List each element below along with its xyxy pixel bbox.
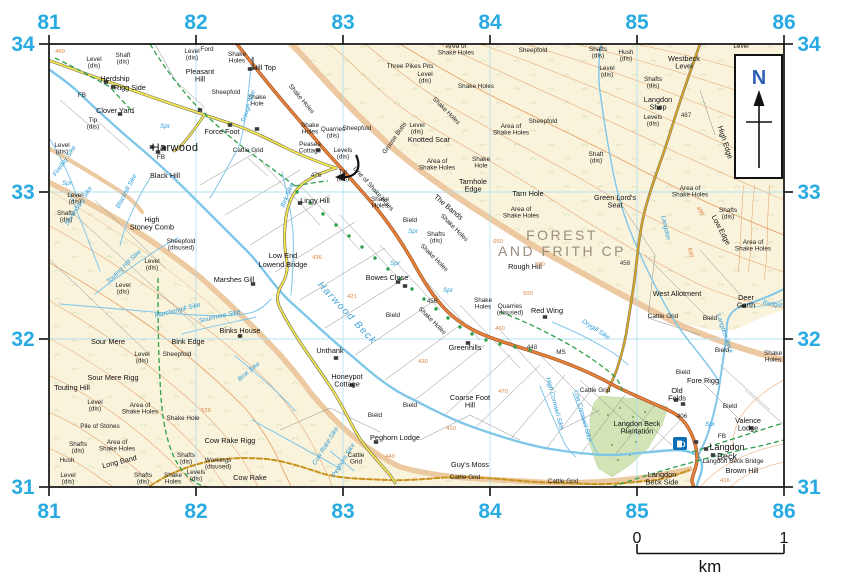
map-label: Level(dis) (134, 351, 149, 365)
map-label: Marshes Gill (214, 275, 255, 284)
map-label: FOREST (526, 227, 598, 243)
map-label: 458 (620, 260, 631, 267)
map-label: Rigg Side (114, 83, 146, 92)
tree-dot (498, 342, 501, 345)
building (704, 447, 708, 451)
map-label: 500 (523, 291, 533, 297)
map-label: Spr (443, 287, 454, 294)
map-label: Shaft(dis) (589, 151, 604, 165)
tree-dot (360, 245, 363, 248)
map-label: Sheepfold (519, 47, 548, 54)
grid-label-bottom: 85 (625, 500, 649, 523)
map-label: Hill Top (252, 63, 276, 72)
map-label: 530 (535, 262, 545, 268)
building (694, 440, 698, 444)
map-label: Bield (403, 402, 418, 409)
map-label: Touting Hill (54, 383, 90, 392)
map-label: Spr (705, 421, 716, 428)
grid-label-bottom: 84 (478, 500, 502, 523)
map-label: Tarn Hole (512, 189, 543, 198)
building (255, 127, 259, 131)
map-label: LangdonBeck Side (646, 470, 679, 487)
map-label: 460 (495, 326, 505, 332)
tree-dot (347, 234, 350, 237)
map-label: MS (556, 349, 566, 356)
map-label: FB (157, 154, 165, 161)
north-arrow: N (735, 55, 782, 178)
map-label: Hush (60, 457, 75, 464)
map-label: 416 (720, 478, 730, 484)
grid-label-bottom: 82 (184, 500, 207, 523)
map-label: Force Foot (204, 127, 239, 136)
map-label: Level(dis) (184, 48, 199, 62)
map-label: 406 (677, 413, 688, 420)
grid-label-top: 84 (478, 11, 502, 34)
map-label: Langdon Beck Bridge (702, 458, 764, 465)
map-label: Level(dis) (417, 71, 432, 85)
tree-dot (458, 325, 461, 328)
map-label: Bowes Close (366, 273, 409, 282)
map-label: Cattle Grid (648, 313, 679, 320)
tree-dot (470, 332, 473, 335)
building (403, 284, 407, 288)
tree-dot (334, 223, 337, 226)
map-label: Cattle Grid (450, 474, 481, 481)
tree-dot (295, 190, 298, 193)
map-label: Bield (715, 347, 730, 354)
map-label: Peghorn Lodge (370, 433, 420, 442)
map-label: Cattle Grid (233, 147, 264, 154)
map-label: Harwood (152, 142, 199, 154)
map-label: Sheepfold (212, 89, 241, 96)
map-label: Spr (390, 260, 401, 267)
grid-label-top: 85 (625, 11, 649, 34)
grid-label-left: 33 (11, 181, 34, 204)
map-label: 410 (446, 426, 456, 432)
grid-label-left: 32 (11, 328, 34, 351)
map-label: Shaft(dis) (116, 52, 131, 66)
grid-label-right: 32 (797, 328, 820, 351)
map-label: Low End (269, 251, 297, 260)
map-label: Level(dis) (144, 258, 159, 272)
map-label: Brown Hill (726, 466, 759, 475)
grid-label-bottom: 83 (331, 500, 354, 523)
map-label: FB (718, 433, 726, 440)
tree-dot (321, 212, 324, 215)
map-label: West Allotment (653, 289, 702, 298)
map-label: 448 (527, 344, 538, 351)
map-label: Bink Edge (171, 337, 204, 346)
building (334, 356, 338, 360)
grid-label-right: 34 (797, 33, 821, 56)
north-label: N (752, 67, 766, 89)
map-label: Sheepfold (529, 118, 558, 125)
map-label: ShakeHoles (301, 122, 320, 136)
tree-dot (446, 316, 449, 319)
map-label: Bield (676, 369, 691, 376)
map-label: Cattle Grid (580, 387, 611, 394)
map-label: Three Pikes Pits (387, 63, 434, 70)
map-label: Level(dis) (599, 65, 614, 79)
map-label: Bield (386, 312, 401, 319)
map-label: Bield (403, 217, 418, 224)
map-label: FB (78, 92, 86, 99)
map-label: 458 (427, 298, 438, 305)
building (711, 453, 715, 457)
map-label: Spr (160, 123, 171, 130)
map-label: Ford (200, 46, 214, 53)
building (543, 315, 547, 319)
map-label: 470 (498, 389, 508, 395)
map-label: Level(dis) (115, 282, 130, 296)
map-label: Spr (408, 228, 419, 235)
map-label: ShakeHoles (164, 472, 183, 486)
map-label: Fore Rigg (687, 376, 719, 385)
grid-label-bottom: 81 (37, 500, 61, 523)
map-label: ShakeHoles (371, 196, 390, 210)
map-label: HoneypotCottage (331, 372, 362, 389)
tree-dot (386, 267, 389, 270)
map-label: Level(dis) (86, 56, 101, 70)
map-label: Greenhills (449, 343, 482, 352)
grid-label-right: 33 (797, 181, 820, 204)
map-label: Cow Rake Rigg (205, 436, 256, 445)
grid-label-top: 81 (37, 11, 61, 34)
map-label: PeaseaCottage (299, 141, 322, 155)
map-screenshot: Level(dis)Shaft(dis)HerdshipRigg SideFBC… (0, 0, 842, 582)
map-label: Level(dis) (60, 472, 75, 486)
map-label: Shake Hole (166, 415, 199, 422)
map-label: Hush(dis) (619, 49, 634, 63)
map-label: ShakeHoles (474, 297, 493, 311)
map-label: Sheepfold (343, 125, 372, 132)
tree-dot (422, 297, 425, 300)
building (198, 108, 202, 112)
tree-dot (434, 307, 437, 310)
map-label: Knotted Scar (408, 135, 451, 144)
map-label: 460 (55, 49, 65, 55)
map-label: AND FRITH CP (498, 243, 626, 259)
map-label: Bield (723, 403, 738, 410)
map-label: Pile of Stones (80, 423, 119, 430)
map-label: 430 (418, 359, 428, 365)
map-label: Workings(disused) (205, 457, 232, 471)
map-label: Lingy Hill (300, 196, 330, 205)
map-label: Herdship (100, 74, 129, 83)
os-map: Level(dis)Shaft(dis)HerdshipRigg SideFBC… (0, 0, 842, 582)
map-label: Guy's Moss (451, 460, 489, 469)
grid-label-right: 31 (797, 476, 821, 499)
map-label: Binks House (220, 326, 261, 335)
map-label: 487 (681, 112, 692, 119)
map-label: ValenceLodge (735, 416, 761, 433)
map-label: Sour Mere Rigg (87, 373, 138, 382)
map-label: Shake Holes (458, 83, 494, 90)
map-label: 421 (347, 294, 357, 300)
map-label: Cow Rake (233, 473, 267, 482)
map-label: Unthank (316, 346, 344, 355)
map-label: Clover Yard (96, 106, 134, 115)
building (681, 402, 685, 406)
map-label: 476 (311, 172, 322, 179)
map-label: Quarries(disused) (497, 303, 523, 317)
map-label: Sheepfold(disused) (167, 238, 196, 252)
map-label: Sheepfold (163, 351, 192, 358)
map-label: Spr (62, 180, 73, 187)
map-label: 650 (493, 239, 503, 245)
scale-unit: km (699, 557, 722, 576)
map-label: 436 (312, 255, 322, 261)
map-label: DeerGarth (737, 293, 755, 310)
map-label: Cattle Grid (548, 478, 579, 485)
map-label: ShakeHoles (764, 350, 783, 364)
tree-dot (484, 338, 487, 341)
map-label: Level(dis) (87, 399, 102, 413)
grid-label-left: 31 (11, 476, 35, 499)
map-label: Black Hill (150, 171, 180, 180)
grid-label-left: 34 (11, 33, 35, 56)
map-label: 529 (201, 408, 211, 414)
tree-dot (373, 256, 376, 259)
grid-label-top: 83 (331, 11, 354, 34)
map-label: Red Wing (531, 306, 563, 315)
map-label: Lowend Bridge (259, 260, 308, 269)
pub-icon (673, 437, 687, 450)
tree-dot (513, 345, 516, 348)
map-label: Sour Mere (91, 337, 125, 346)
map-label: Bield (368, 412, 383, 419)
grid-label-top: 86 (772, 11, 795, 34)
map-label: 440 (385, 454, 395, 460)
tree-dot (410, 287, 413, 290)
grid-label-bottom: 86 (772, 500, 795, 523)
map-label: Level(dis) (409, 122, 424, 136)
map-label: ShakeHoles (228, 51, 247, 65)
grid-label-top: 82 (184, 11, 207, 34)
